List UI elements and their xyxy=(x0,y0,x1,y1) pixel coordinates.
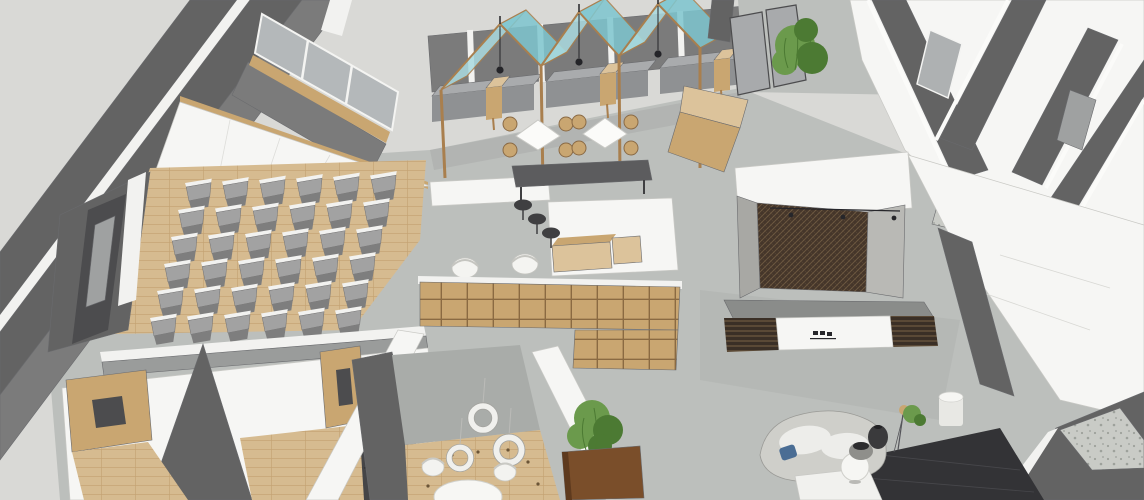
rattan-chair xyxy=(559,143,573,157)
reception-side-wall-right xyxy=(866,205,905,298)
meeting-chair xyxy=(422,458,444,476)
desk-front-panel xyxy=(776,316,893,350)
rattan-chair xyxy=(503,143,517,157)
niche-slot-2 xyxy=(336,368,353,406)
screenshot-root xyxy=(0,0,1144,500)
rattan-chair xyxy=(559,117,573,131)
rattan-chair xyxy=(572,141,586,155)
rattan-chair xyxy=(503,117,517,131)
desk-slat-right xyxy=(890,316,938,347)
white-cylinder-stool xyxy=(939,392,963,426)
reception-side-wall-left xyxy=(737,196,760,298)
rattan-chair xyxy=(624,141,638,155)
planter-box xyxy=(562,446,644,500)
reception-desk xyxy=(724,300,938,352)
rattan-chair xyxy=(572,115,586,129)
mesh-feature-wall xyxy=(757,203,868,292)
library-armchair xyxy=(452,258,478,278)
desk-slat-left xyxy=(724,318,779,352)
library-armchair xyxy=(512,254,538,274)
niche-slot xyxy=(92,396,126,428)
meeting-chair xyxy=(494,463,516,481)
office-3d-render xyxy=(0,0,1144,500)
bookshelf-lower xyxy=(573,330,678,370)
rattan-chair xyxy=(624,115,638,129)
lamp-base xyxy=(849,480,861,484)
bookshelf-upper xyxy=(420,282,680,330)
meeting-concrete xyxy=(392,345,540,445)
